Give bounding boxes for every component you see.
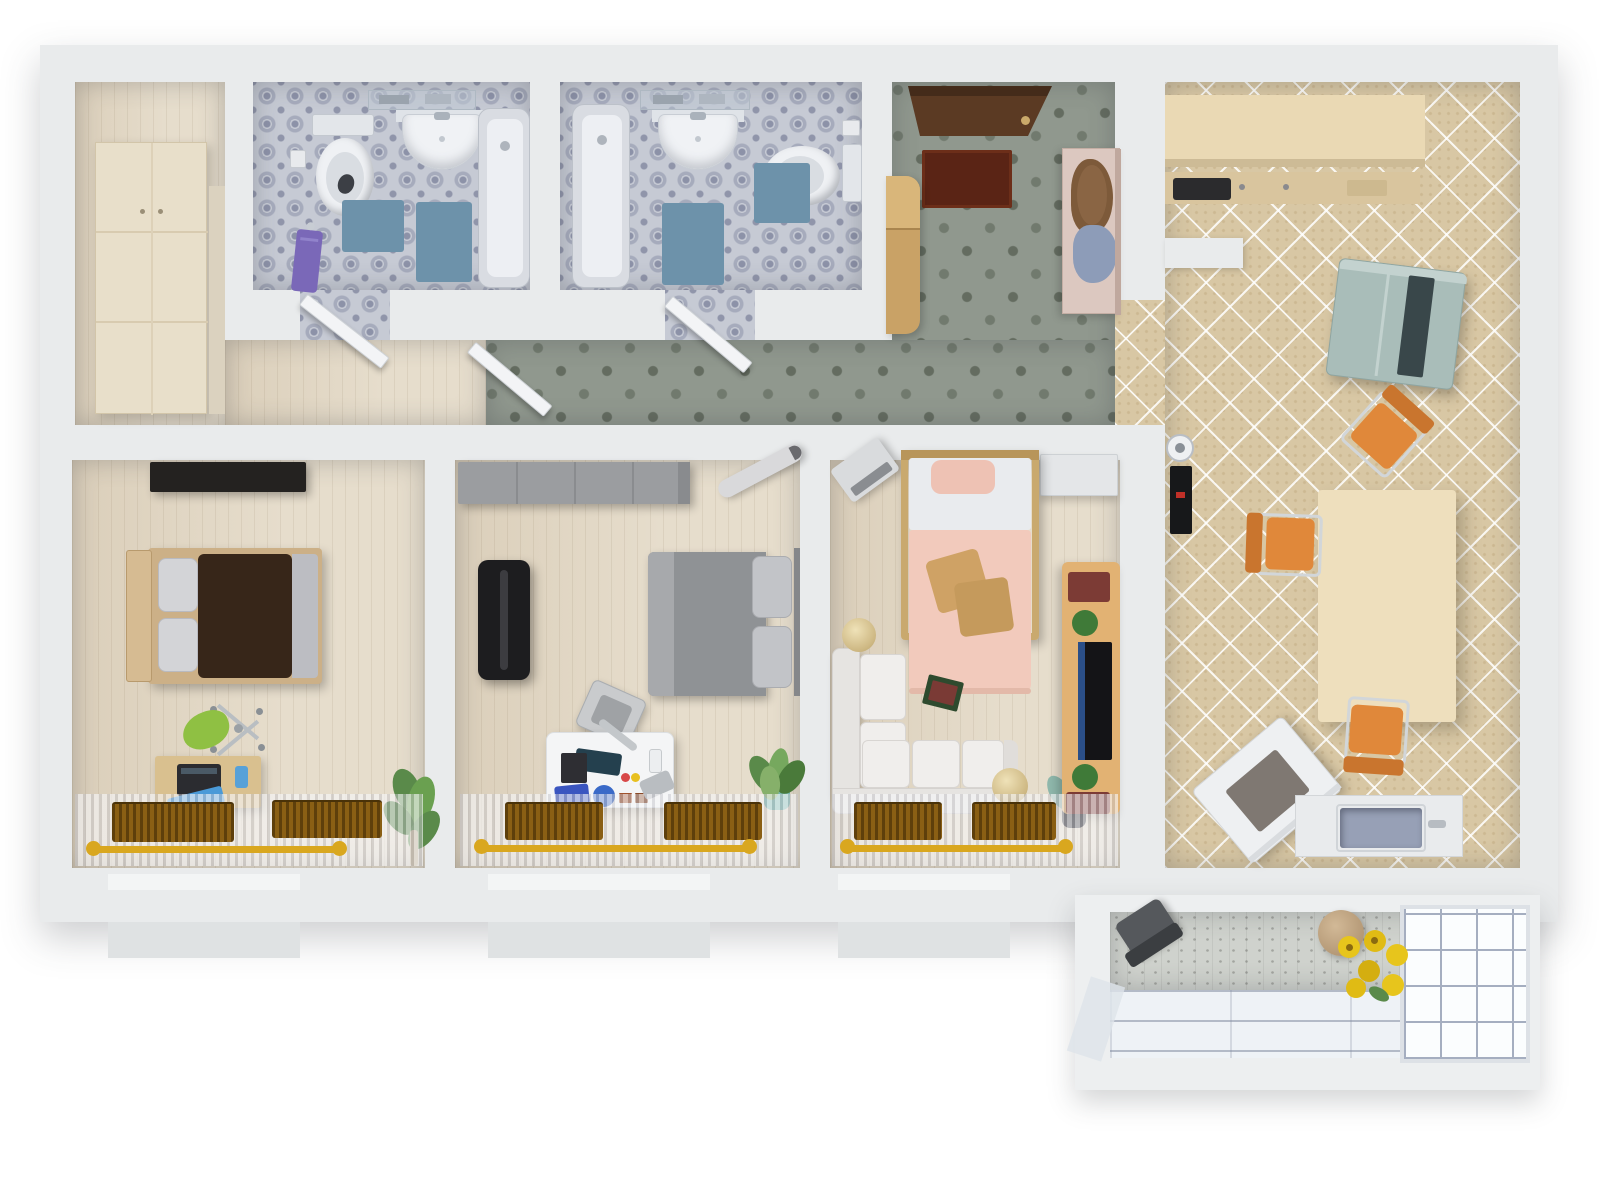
window-tab-right — [838, 922, 1010, 958]
bedroom2-bed — [648, 548, 800, 696]
dining-chair-left — [1259, 515, 1321, 573]
living-curtain-rod — [848, 845, 1066, 852]
sink2-drain-dot — [695, 136, 701, 142]
wardrobe2-side — [678, 462, 690, 504]
bath1-bathtub — [478, 108, 530, 288]
toilet-paper-holder — [290, 150, 306, 168]
bedroom1-shelf — [150, 462, 306, 492]
towel-fold — [300, 237, 318, 242]
bath2-glass-shelf — [640, 90, 750, 110]
bath2-bathtub — [572, 104, 630, 288]
tub-drain — [500, 141, 510, 151]
bedroom1-rod-finial-r — [332, 841, 347, 856]
bedroom1-bed — [126, 548, 322, 684]
desk1-laptop-screen — [181, 768, 217, 774]
wall-unit-led — [1176, 492, 1185, 498]
window-tab-mid — [488, 922, 710, 958]
dining-table — [1318, 490, 1456, 722]
flower-3 — [1386, 944, 1408, 966]
tv-plant-bottom — [1072, 764, 1098, 790]
chair-seat — [1348, 704, 1403, 756]
desk2-panel — [561, 753, 587, 783]
living-rod-finial-l — [840, 839, 855, 854]
hall-coat-rack — [1062, 148, 1120, 314]
living-tv-wall-unit — [1048, 562, 1120, 814]
closet-ladder-rack — [209, 186, 225, 414]
desk2-dot-yellow — [631, 773, 640, 782]
closet-wardrobe — [95, 142, 207, 414]
fridge-divider — [1375, 269, 1391, 377]
apartment-floor-plan — [0, 0, 1600, 1200]
cooktop-knob-2 — [1283, 184, 1289, 190]
bed1-duvet — [198, 554, 292, 678]
cooktop — [1173, 178, 1231, 200]
dining-chair-bottom — [1346, 698, 1406, 762]
wardrobe-handle-1 — [140, 209, 145, 214]
sofa-cushion-v1 — [860, 654, 906, 720]
wardrobe2-seam-3 — [632, 462, 634, 504]
bath1-mat-toilet — [342, 200, 404, 252]
living-ball-lamp-1 — [842, 618, 876, 652]
hall-shoe-cabinet — [886, 176, 920, 334]
fridge-vent-slot — [1397, 275, 1435, 377]
desk1-phone — [235, 766, 248, 788]
chair1-caster-2 — [258, 744, 265, 751]
tub2-drain — [597, 135, 607, 145]
tv-screen-glow — [1078, 642, 1085, 760]
shelf2-item-1 — [653, 95, 683, 104]
sink2-faucet — [690, 112, 706, 120]
tv-speaker-top — [1068, 572, 1110, 602]
toilet2-tank — [842, 144, 862, 202]
bedroom1-radiator-a — [112, 802, 234, 842]
sink2-basin — [658, 114, 738, 170]
chair1-stem — [234, 724, 243, 733]
bed2-fold — [648, 552, 674, 696]
bed1-pillow-2 — [158, 618, 198, 672]
balcony-flowers — [1338, 930, 1422, 1012]
wall-unit-dot — [1175, 443, 1185, 453]
living-rod-finial-r — [1058, 839, 1073, 854]
bedroom1-curtain-rod — [94, 846, 340, 853]
kitchen-counter-lower — [1165, 172, 1420, 204]
ksink-faucet — [1428, 820, 1446, 828]
bath2-mat-toilet — [754, 163, 810, 223]
toilet2-paper-holder — [842, 120, 860, 136]
wardrobe-seam-v — [151, 143, 153, 415]
wardrobe-handle-2 — [158, 209, 163, 214]
wardrobe2-seam-2 — [574, 462, 576, 504]
toilet-tank — [312, 114, 374, 136]
bed1-pillow-1 — [158, 558, 198, 612]
shoe-cabinet-seam — [886, 228, 920, 230]
bedroom1-rod-finial-l — [86, 841, 101, 856]
tv-plant-top — [1072, 610, 1098, 636]
coat-blue-cloth — [1073, 225, 1117, 283]
bedroom2-wardrobe — [458, 462, 690, 504]
shelf2-item-2 — [699, 94, 725, 104]
bath1-glass-shelf — [368, 90, 476, 110]
shelf-item-2 — [425, 94, 451, 104]
bedroom2-tv-cabinet — [478, 560, 530, 680]
bath1-mat-tub — [416, 202, 472, 282]
window-strip-mid — [488, 874, 710, 890]
sofa-cushion-b1 — [862, 740, 910, 788]
window-strip-right — [838, 874, 1010, 890]
entry-door-shade — [905, 86, 1055, 96]
daybed-pillow-b — [954, 577, 1015, 638]
sofa-back-left — [832, 648, 860, 800]
window-strip-left — [108, 874, 300, 890]
ksink-basin — [1340, 808, 1422, 848]
coat-brown-fold — [1077, 165, 1107, 225]
counter-front-shadow — [1165, 159, 1425, 167]
bed2-frame-edge — [794, 548, 800, 696]
daybed-pink-roll — [931, 460, 995, 494]
bed2-pillow-1 — [752, 556, 792, 618]
bedroom2-curtain-rod — [482, 845, 750, 852]
tv-cabinet-groove — [500, 570, 508, 670]
entry-doormat — [922, 150, 1012, 208]
bed1-sheet-fold — [292, 554, 318, 678]
kitchen-wall-stub — [1165, 238, 1243, 268]
chair1-caster-1 — [256, 708, 263, 715]
flower-6 — [1346, 978, 1366, 998]
bedroom2-radiator-b — [664, 802, 762, 840]
living-radiator-b — [972, 802, 1056, 840]
bedroom2-radiator-a — [505, 802, 603, 840]
window-tab-left — [108, 922, 300, 958]
entry-door-handle — [1021, 116, 1030, 125]
bath1-sink — [396, 110, 488, 172]
kitchen-wall-unit — [1166, 434, 1196, 536]
bedroom2-rod-finial-r — [742, 839, 757, 854]
wardrobe2-seam-1 — [516, 462, 518, 504]
desk2-phone — [649, 749, 662, 773]
sink-drain-dot — [439, 136, 445, 142]
chair-back — [1245, 512, 1263, 573]
kitchen-counter-top — [1165, 95, 1425, 167]
living-cabinet — [1040, 454, 1118, 496]
living-daybed — [901, 450, 1039, 698]
cooktop-knob-1 — [1239, 184, 1245, 190]
kitchen-opening-floor — [1115, 300, 1165, 425]
counter-sink-hint — [1347, 180, 1387, 196]
kitchen-sink-counter — [1295, 795, 1463, 857]
sink-basin — [402, 114, 482, 170]
shoe-cabinet-top — [886, 176, 920, 228]
desk2-dot-red — [621, 773, 630, 782]
flower-center-1 — [1346, 944, 1353, 951]
bed1-headboard — [126, 550, 152, 682]
coat-rack-side — [1115, 149, 1121, 315]
living-radiator-a — [854, 802, 942, 840]
bedroom2-rod-finial-l — [474, 839, 489, 854]
wall-unit-body — [1170, 466, 1192, 534]
closet-corridor-ext-floor — [225, 340, 486, 425]
flower-center-2 — [1371, 937, 1378, 944]
shelf-item-1 — [379, 95, 409, 104]
bedroom1-chair — [182, 698, 266, 760]
bath2-sink — [652, 110, 744, 172]
bath2-mat-sink — [662, 203, 724, 285]
sink-faucet — [434, 112, 450, 120]
corridor-floor — [486, 340, 1115, 425]
fridge — [1325, 258, 1466, 391]
bedroom1-radiator-b — [272, 800, 382, 838]
bed2-pillow-2 — [752, 626, 792, 688]
chair-seat — [1265, 517, 1315, 571]
sofa-cushion-b2 — [912, 740, 960, 788]
